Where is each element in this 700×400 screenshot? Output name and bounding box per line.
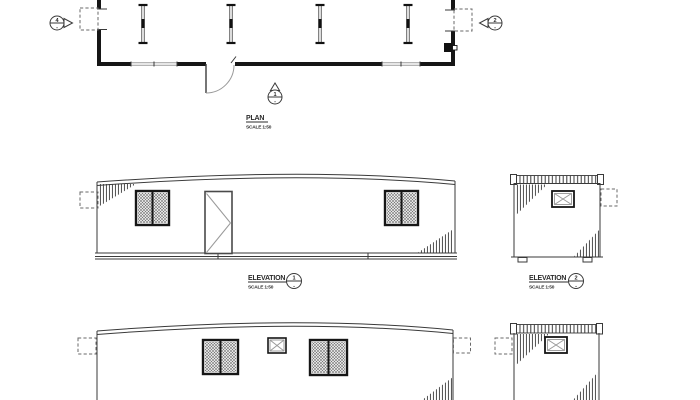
elevation3-corner-hatch-right (422, 377, 453, 400)
elevation3-vent-louvre (268, 338, 286, 353)
elevation3-window-left (203, 340, 238, 374)
view-marker-2-number: 2 (494, 18, 497, 24)
elevation1-landing-left (80, 192, 98, 208)
elevation1-title: ELEVATION (248, 275, 285, 282)
plan-door (206, 57, 236, 94)
view-marker-2-icon: 2 - (480, 16, 503, 31)
elevation3-landing-right (454, 338, 471, 353)
elevation2-view: ELEVATION SCALE 1:50 2 - (511, 175, 618, 291)
elevation1-label: ELEVATION SCALE 1:50 1 - (248, 274, 302, 291)
elevation2-scale: SCALE 1:50 (529, 285, 555, 291)
plan-exterior-wall-right (445, 0, 455, 64)
elevation3-landing-left (78, 338, 96, 354)
elevation2-foot (518, 258, 527, 263)
elevation2-label: ELEVATION SCALE 1:50 2 - (529, 274, 584, 291)
elevation1-door (205, 192, 232, 254)
cad-canvas: 4 - 2 - 1 - PLAN SCALE 1:50 (0, 0, 700, 400)
elevation2-number-bubble: 2 - (569, 274, 584, 290)
view-marker-1-icon: 1 - (268, 83, 282, 105)
elevation2-foot (583, 258, 592, 263)
view-marker-1-number: 1 (274, 92, 277, 98)
plan-column (139, 5, 148, 43)
plan-column (227, 5, 236, 43)
plan-label: PLAN SCALE 1:50 (246, 115, 272, 131)
elevation3-window-right (310, 340, 347, 375)
plan-landing-right (454, 9, 472, 31)
elevation3-view (78, 323, 471, 400)
elevation1-number: 1 (293, 276, 296, 282)
plan-landing-left (80, 8, 98, 30)
elevation2-corner-hatch-right (574, 230, 599, 257)
elevation1-corner-hatch-left (98, 184, 136, 207)
plan-columns (139, 5, 413, 43)
elevation1-number-bubble: 1 - (287, 274, 302, 290)
drawing-sheet: 4 - 2 - 1 - PLAN SCALE 1:50 (0, 0, 700, 400)
elevation2-landing-right (601, 189, 617, 206)
elevation1-view: ELEVATION SCALE 1:50 1 - (80, 174, 457, 290)
elevation2-vent-louvre (552, 191, 574, 207)
elevation2-roof-band (513, 176, 601, 184)
plan-meter-box (444, 43, 457, 52)
plan-title: PLAN (246, 115, 264, 122)
elevation2-title: ELEVATION (529, 275, 566, 282)
elevation2-corner-hatch-left (515, 185, 547, 217)
plan-exterior-wall-left (97, 0, 107, 64)
elevation1-window-right (385, 191, 418, 225)
plan-window-left (131, 62, 177, 67)
elevation4-corner-hatch-left (515, 334, 549, 366)
elevation4-vent-louvre (545, 337, 567, 353)
elevation4-landing-left (495, 338, 512, 354)
plan-window-right (382, 62, 420, 67)
elevation1-window-left (136, 191, 169, 225)
plan-column (316, 5, 325, 43)
elevation2-number: 2 (575, 276, 578, 282)
elevation4-roof-band (513, 325, 600, 334)
plan-scale: SCALE 1:50 (246, 125, 272, 131)
plan-view: 4 - 2 - 1 - PLAN SCALE 1:50 (50, 0, 502, 131)
elevation1-corner-hatch-right (418, 229, 454, 253)
elevation4-corner-hatch-right (573, 372, 598, 400)
elevation1-scale: SCALE 1:50 (248, 285, 274, 291)
view-marker-4-icon: 4 - (50, 16, 73, 31)
elevation4-view (495, 324, 603, 400)
plan-column (404, 5, 413, 43)
